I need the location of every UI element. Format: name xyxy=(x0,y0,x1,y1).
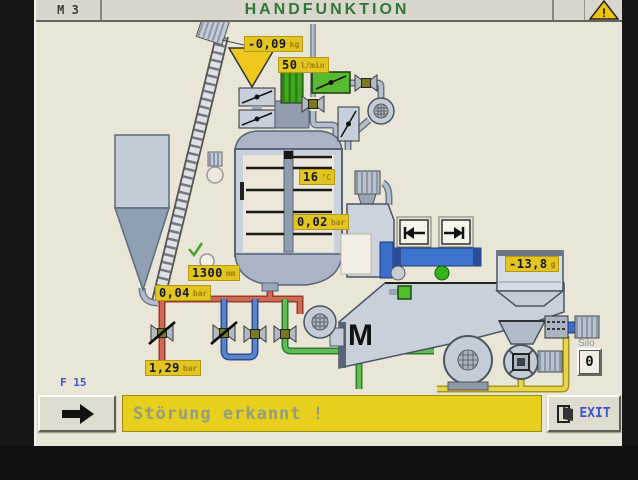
funnel-valve-upper[interactable] xyxy=(239,88,275,106)
device-bezel xyxy=(0,446,638,480)
hmi-panel-photo: { "header": { "station": "M 3", "title":… xyxy=(0,0,638,480)
top-blower-fan xyxy=(368,98,394,124)
header-bar: M 3 HANDFUNKTION ! xyxy=(36,0,622,22)
green-inline-valve[interactable] xyxy=(312,72,350,93)
page-title: HANDFUNKTION xyxy=(102,1,552,19)
hmi-screen: M 3 HANDFUNKTION ! xyxy=(34,0,622,446)
fill-level-display: 1300 mm xyxy=(188,265,240,281)
gray-inline-valve[interactable] xyxy=(338,107,359,141)
check-icon xyxy=(189,243,202,255)
vessel-green-valve[interactable] xyxy=(398,286,411,299)
dosing-funnel xyxy=(229,48,275,87)
mill-blower-fan xyxy=(304,306,344,346)
alarm-message-bar: Störung erkannt ! xyxy=(122,395,542,432)
pneumatic-slide xyxy=(391,248,481,280)
funnel-valve-lower[interactable] xyxy=(239,110,275,128)
lightbulb-icon xyxy=(207,152,223,183)
exit-button[interactable]: EXIT xyxy=(547,395,621,432)
tank-temperature-display: 16 °C xyxy=(299,169,335,185)
next-page-button[interactable] xyxy=(38,395,116,432)
exit-button-label: EXIT xyxy=(579,406,610,421)
valve-connector xyxy=(252,106,262,110)
supply-pressure-display: 0,04 bar xyxy=(155,285,211,301)
butterfly-valve-top-left[interactable] xyxy=(302,96,324,112)
tank-pressure-display: 0,02 bar xyxy=(293,214,349,230)
slide-right-button[interactable] xyxy=(439,217,473,247)
alarm-warning-button[interactable]: ! xyxy=(584,0,622,20)
page-code-label: F 15 xyxy=(60,376,87,389)
dosing-weight-display: -0,09 kg xyxy=(244,36,303,52)
silo-feeder-unit: Silo xyxy=(545,316,599,349)
mixer-tank xyxy=(235,131,342,285)
slide-end-sensor-green xyxy=(435,266,449,280)
station-label: M 3 xyxy=(36,0,102,20)
flow-rate-display: 50 l/min xyxy=(278,57,329,73)
slide-left-button[interactable] xyxy=(397,217,431,247)
alarm-message-text: Störung erkannt ! xyxy=(133,404,324,424)
svg-text:!: ! xyxy=(602,6,606,20)
mill-motor-label: M xyxy=(348,319,373,352)
silo-counter-field[interactable]: 0 xyxy=(577,348,602,376)
slide-end-sensor-gray xyxy=(391,266,405,280)
scale-weight-display: -13,8 g xyxy=(505,256,559,272)
butterfly-valve-top-right[interactable] xyxy=(355,75,377,91)
door-exit-icon xyxy=(557,405,574,423)
exhaust-fan xyxy=(444,336,492,390)
arrow-right-icon xyxy=(56,401,98,427)
vent-valve-stub xyxy=(389,289,398,295)
warning-triangle-icon: ! xyxy=(589,0,619,20)
header-spacer xyxy=(552,0,584,20)
line-pressure-display: 1,29 bar xyxy=(145,360,201,376)
